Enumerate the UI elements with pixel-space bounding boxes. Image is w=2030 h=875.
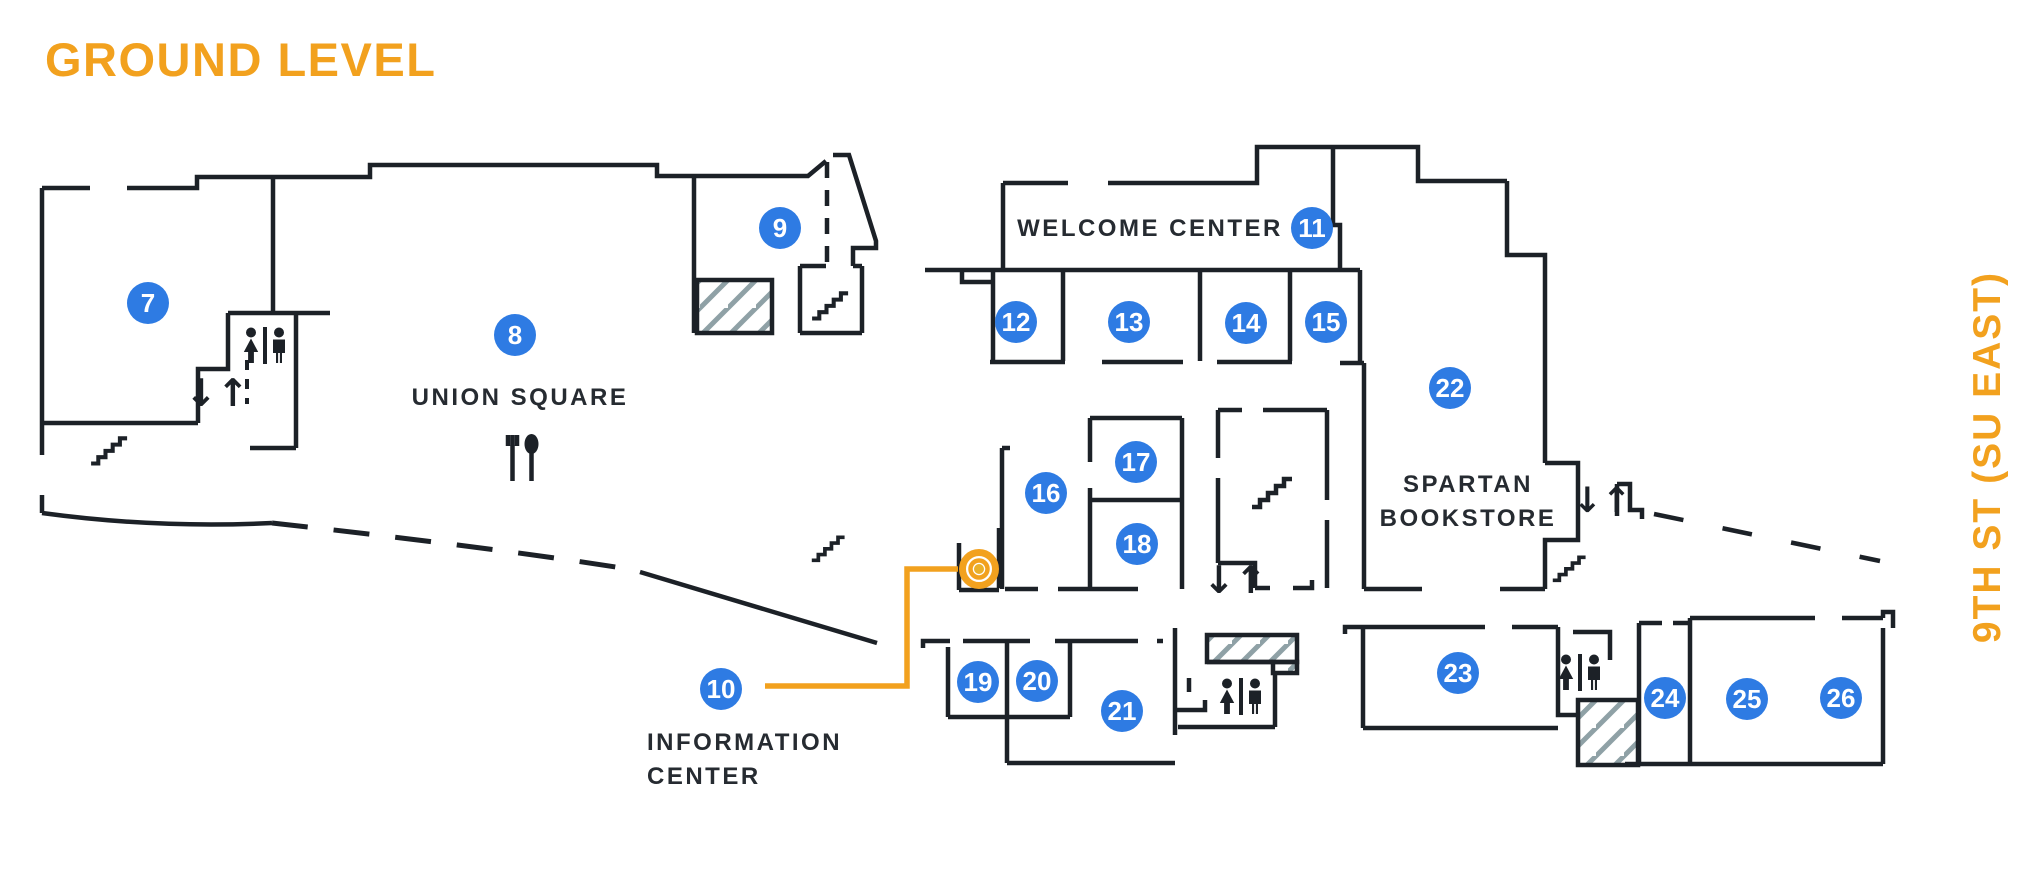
- hatched-area: [1273, 662, 1297, 673]
- room-marker-number: 15: [1312, 307, 1341, 337]
- wall: [235, 165, 694, 177]
- elevator-icon: [185, 371, 249, 415]
- wall: [833, 155, 876, 266]
- room-marker-number: 25: [1733, 684, 1762, 714]
- room-marker-number: 23: [1444, 658, 1473, 688]
- wall: [1345, 627, 1485, 634]
- room-marker-14: 14: [1225, 302, 1267, 344]
- stairs-icon: [1553, 557, 1586, 580]
- room-marker-number: 10: [707, 674, 736, 704]
- stairs-icon: [91, 438, 127, 463]
- elevator-icon: [1203, 558, 1267, 602]
- route-line: [765, 569, 958, 686]
- room-marker-26: 26: [1820, 677, 1862, 719]
- label-welcome-center: WELCOME CENTER: [1017, 215, 1283, 242]
- room-marker-11: 11: [1291, 207, 1333, 249]
- bullseye-icon: [963, 553, 996, 586]
- room-marker-20: 20: [1016, 660, 1058, 702]
- label-spartan-bookstore: SPARTANBOOKSTORE: [1380, 471, 1557, 532]
- street-label: 9TH ST (SU EAST): [1966, 271, 2009, 643]
- wall: [1293, 580, 1312, 588]
- floor-plan-map: ↓↑: [0, 0, 2030, 875]
- dining-icon: [508, 434, 539, 481]
- room-marker-number: 24: [1651, 683, 1680, 713]
- room-marker-10: 10: [700, 668, 742, 710]
- room-marker-number: 7: [141, 288, 155, 318]
- concourse-edge-dashed: [272, 523, 622, 568]
- hatched-area: [1207, 635, 1297, 662]
- room-marker-23: 23: [1437, 652, 1479, 694]
- area-labels-layer: UNION SQUAREWELCOME CENTERSPARTANBOOKSTO…: [412, 215, 1557, 790]
- room-marker-8: 8: [494, 314, 536, 356]
- restroom-icon: [244, 327, 285, 364]
- wall: [1177, 700, 1205, 710]
- room-marker-7: 7: [127, 282, 169, 324]
- hatched-area: [697, 280, 772, 333]
- room-marker-19: 19: [957, 661, 999, 703]
- room-marker-9: 9: [759, 207, 801, 249]
- room-marker-12: 12: [995, 301, 1037, 343]
- hatched-area: [1578, 700, 1638, 765]
- room-marker-number: 9: [773, 213, 787, 243]
- room-marker-16: 16: [1025, 472, 1067, 514]
- room-marker-number: 22: [1436, 373, 1465, 403]
- room-marker-21: 21: [1101, 690, 1143, 732]
- floor-plan-page: ↓↑: [0, 0, 2030, 875]
- room-marker-15: 15: [1305, 301, 1347, 343]
- room-marker-number: 16: [1032, 478, 1061, 508]
- wall: [1507, 181, 1545, 463]
- wall: [923, 641, 950, 648]
- label-information-center: INFORMATIONCENTER: [647, 729, 842, 790]
- label-union-square: UNION SQUARE: [412, 384, 629, 411]
- restroom-icon: [1220, 678, 1261, 715]
- room-marker-number: 11: [1298, 213, 1326, 243]
- room-marker-24: 24: [1644, 677, 1686, 719]
- boundary-dashed: [1654, 514, 1880, 561]
- room-marker-13: 13: [1108, 301, 1150, 343]
- room-marker-number: 18: [1123, 529, 1152, 559]
- wall: [1108, 147, 1507, 183]
- wall: [1333, 147, 1340, 270]
- room-marker-25: 25: [1726, 678, 1768, 720]
- room-marker-number: 14: [1232, 308, 1261, 338]
- room-marker-number: 8: [508, 320, 522, 350]
- wall: [1883, 612, 1893, 628]
- elevator-icon: [1573, 481, 1632, 521]
- wall: [127, 177, 235, 188]
- room-marker-number: 20: [1023, 666, 1052, 696]
- room-marker-number: 26: [1827, 683, 1856, 713]
- room-marker-number: 19: [964, 667, 993, 697]
- room-marker-number: 13: [1115, 307, 1144, 337]
- room-marker-17: 17: [1115, 441, 1157, 483]
- concourse-edge: [640, 572, 877, 643]
- room-marker-18: 18: [1116, 523, 1158, 565]
- stairs-icon: [812, 537, 845, 560]
- room-marker-number: 12: [1002, 307, 1031, 337]
- room-marker-number: 21: [1108, 696, 1137, 726]
- restroom-icon: [1559, 654, 1600, 691]
- wall: [694, 161, 826, 176]
- concourse-edge: [42, 513, 272, 524]
- stairs-icon: [1252, 479, 1292, 507]
- room-marker-number: 17: [1122, 447, 1151, 477]
- room-marker-22: 22: [1429, 367, 1471, 409]
- page-title: GROUND LEVEL: [45, 33, 436, 86]
- stairs-icon: [812, 293, 848, 318]
